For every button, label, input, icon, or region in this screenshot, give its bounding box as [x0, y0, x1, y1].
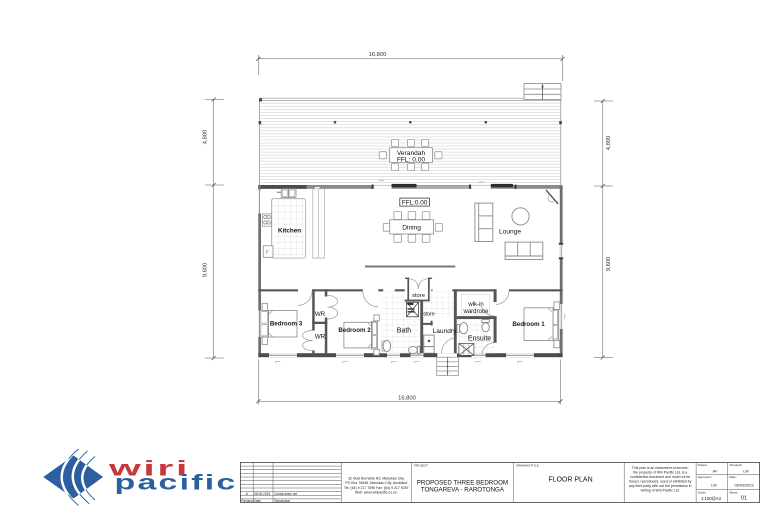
svg-text:Bedroom 3: Bedroom 3 — [270, 321, 303, 328]
svg-text:WR: WR — [315, 311, 326, 318]
svg-text:Kitchen: Kitchen — [278, 228, 301, 235]
svg-text:Web: www.wiripacific.co.nz.: Web: www.wiripacific.co.nz. — [355, 491, 398, 495]
svg-text:LW: LW — [711, 484, 717, 488]
svg-text:confidential document and must: confidential document and must not be — [630, 475, 690, 479]
svg-text:01: 01 — [741, 496, 747, 502]
svg-text:16,800: 16,800 — [398, 396, 416, 402]
svg-text:Revision: Revision — [241, 499, 253, 503]
svg-text:Date:: Date: — [729, 475, 737, 479]
svg-text:Date: Date — [254, 499, 261, 503]
svg-text:pacific: pacific — [115, 471, 238, 495]
svg-text:4,800: 4,800 — [606, 136, 612, 151]
svg-text:Checked:: Checked: — [729, 463, 742, 467]
svg-text:Bedroom 1: Bedroom 1 — [512, 321, 545, 328]
svg-text:the property of Wiri Pacific L: the property of Wiri Pacific Ltd, is a — [633, 470, 687, 474]
svg-text:store: store — [423, 311, 435, 317]
svg-text:PROJECT: PROJECT — [414, 463, 428, 467]
svg-text:9,600: 9,600 — [606, 257, 612, 272]
svg-text:32 Noel Burnside Rd, Manukau C: 32 Noel Burnside Rd, Manukau City, — [348, 477, 404, 481]
svg-text:store: store — [412, 293, 425, 299]
svg-text:F: F — [266, 250, 269, 255]
svg-text:PO Box 76648, Manukau City, Au: PO Box 76648, Manukau City, Auckland — [345, 481, 407, 485]
svg-text:any third party with out the p: any third party with out the permission … — [629, 484, 692, 488]
svg-text:Bath: Bath — [397, 328, 412, 335]
svg-text:Construction set: Construction set — [274, 492, 297, 496]
svg-text:FFL:0.00: FFL:0.00 — [402, 200, 428, 207]
svg-text:Description: Description — [274, 499, 290, 503]
svg-text:Lounge: Lounge — [499, 229, 521, 236]
svg-text:DRAWINGTITLE: DRAWINGTITLE — [516, 463, 539, 467]
svg-text:Drawn:: Drawn: — [698, 463, 708, 467]
svg-text:4,800: 4,800 — [203, 130, 209, 145]
svg-text:traced, reproduced, used or ex: traced, reproduced, used or exhibited by — [629, 479, 692, 483]
svg-text:Scale :: Scale : — [698, 490, 708, 494]
svg-text:Tel: (64) 9 217 7696 Fax: (64: Tel: (64) 9 217 7696 Fax: (64) 9 217 928… — [344, 486, 409, 490]
svg-text:Bedroom 2: Bedroom 2 — [338, 327, 371, 334]
svg-text:Dining: Dining — [402, 225, 421, 232]
svg-text:08.06.2023: 08.06.2023 — [254, 492, 270, 496]
svg-text:16,800: 16,800 — [369, 52, 387, 58]
svg-text:Laundry: Laundry — [433, 328, 458, 335]
svg-text:06/03/2023: 06/03/2023 — [734, 484, 753, 488]
svg-text:1:100@A3: 1:100@A3 — [701, 496, 722, 501]
svg-text:FFL: 0.00: FFL: 0.00 — [397, 157, 426, 164]
svg-text:TONGAREVA - RAROTONGA: TONGAREVA - RAROTONGA — [421, 487, 505, 494]
svg-text:Ensuite: Ensuite — [468, 336, 491, 343]
svg-text:FLOOR PLAN: FLOOR PLAN — [548, 477, 592, 484]
svg-text:AF: AF — [713, 470, 719, 474]
svg-text:WR: WR — [315, 334, 326, 341]
svg-text:writing of Wiri Pacific Ltd.: writing of Wiri Pacific Ltd. — [641, 488, 680, 492]
svg-text:LW: LW — [743, 470, 749, 474]
svg-text:Sheet:: Sheet: — [729, 490, 738, 494]
svg-text:PROPOSED THREE BEDROOM: PROPOSED THREE BEDROOM — [417, 480, 508, 487]
svg-text:9,600: 9,600 — [203, 263, 209, 278]
svg-text:This plan is an instrument o: This plan is an instrument of service, — [632, 466, 689, 470]
svg-text:Approved:: Approved: — [698, 475, 712, 479]
